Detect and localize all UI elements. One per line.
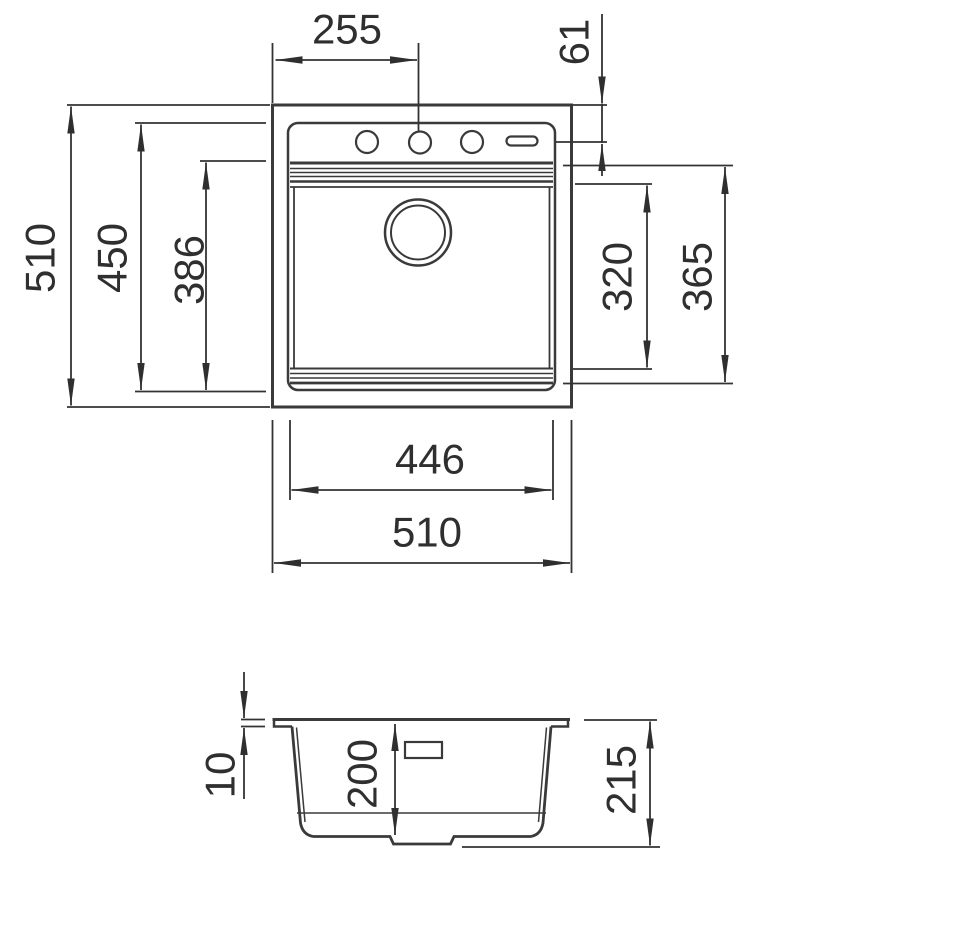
bowl-wall-right-outer bbox=[531, 727, 551, 837]
section-dimensions: 10 200 215 bbox=[197, 672, 660, 847]
dim-label-bowl-depth-outer: 386 bbox=[166, 235, 213, 305]
dim-label-bowl-depth: 200 bbox=[339, 739, 386, 809]
accessory-slot bbox=[507, 137, 538, 146]
dim-label-tap-centre-offset: 61 bbox=[551, 19, 598, 66]
plan-view bbox=[273, 105, 572, 407]
tap-hole-right-icon bbox=[461, 131, 483, 153]
dim-label-overall-depth: 510 bbox=[17, 223, 64, 293]
drainer-grooves-bottom bbox=[290, 369, 553, 384]
bowl-wall-left-outer bbox=[292, 727, 313, 837]
dim-label-overall-height: 215 bbox=[598, 745, 645, 815]
plan-dimensions: 255 61 510 450 386 320 365 446 510 bbox=[17, 6, 733, 573]
drain-hole bbox=[385, 200, 451, 266]
tap-deck bbox=[356, 131, 538, 154]
dim-label-edge-to-tap-centre: 255 bbox=[312, 6, 382, 53]
sink-outer-edge bbox=[273, 105, 572, 407]
drain-inner-circle-icon bbox=[391, 206, 445, 260]
tap-hole-left-icon bbox=[356, 131, 378, 153]
technical-drawing-page: 255 61 510 450 386 320 365 446 510 bbox=[0, 0, 959, 941]
overflow-slot bbox=[405, 742, 442, 758]
dim-label-rim-inner-width: 446 bbox=[395, 436, 465, 483]
dim-label-overall-width: 510 bbox=[392, 509, 462, 556]
sink-technical-drawing: 255 61 510 450 386 320 365 446 510 bbox=[0, 0, 959, 941]
drainer-grooves-top bbox=[290, 163, 553, 187]
bowl-bottom-with-drain-recess bbox=[313, 837, 531, 845]
dim-label-rim-height: 10 bbox=[197, 752, 244, 799]
dim-label-bowl-outer: 365 bbox=[674, 242, 721, 312]
drain-outer-circle-icon bbox=[385, 200, 451, 266]
dim-label-bowl-inner: 320 bbox=[594, 242, 641, 312]
section-view bbox=[273, 720, 571, 845]
dim-label-rim-inner-depth: 450 bbox=[89, 223, 136, 293]
tap-hole-middle-icon bbox=[409, 132, 431, 154]
